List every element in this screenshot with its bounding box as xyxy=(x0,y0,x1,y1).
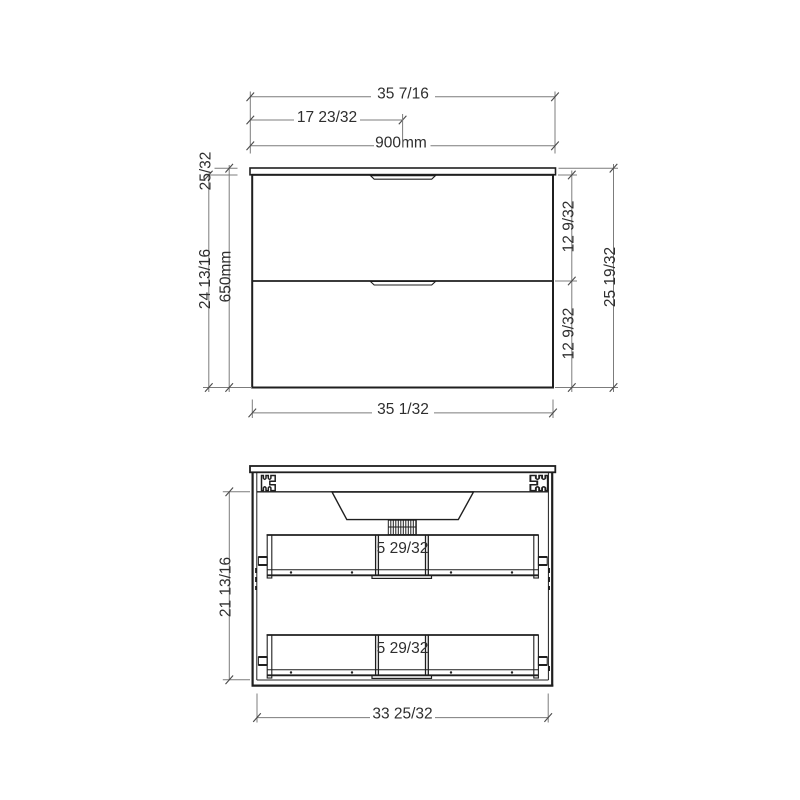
svg-text:12 9/32: 12 9/32 xyxy=(561,308,578,360)
svg-text:5 29/32: 5 29/32 xyxy=(377,540,429,557)
svg-text:21 13/16: 21 13/16 xyxy=(218,557,235,617)
svg-text:12 9/32: 12 9/32 xyxy=(561,201,578,253)
svg-text:25/32: 25/32 xyxy=(197,152,214,191)
svg-text:35 1/32: 35 1/32 xyxy=(377,401,429,418)
svg-text:24 13/16: 24 13/16 xyxy=(197,249,214,309)
svg-text:5 29/32: 5 29/32 xyxy=(377,640,429,657)
svg-text:900mm: 900mm xyxy=(375,135,427,152)
svg-text:25 19/32: 25 19/32 xyxy=(602,247,619,307)
svg-text:33 25/32: 33 25/32 xyxy=(372,706,432,723)
svg-text:650mm: 650mm xyxy=(218,251,235,303)
svg-text:17 23/32: 17 23/32 xyxy=(297,109,357,126)
svg-text:35 7/16: 35 7/16 xyxy=(377,86,429,103)
